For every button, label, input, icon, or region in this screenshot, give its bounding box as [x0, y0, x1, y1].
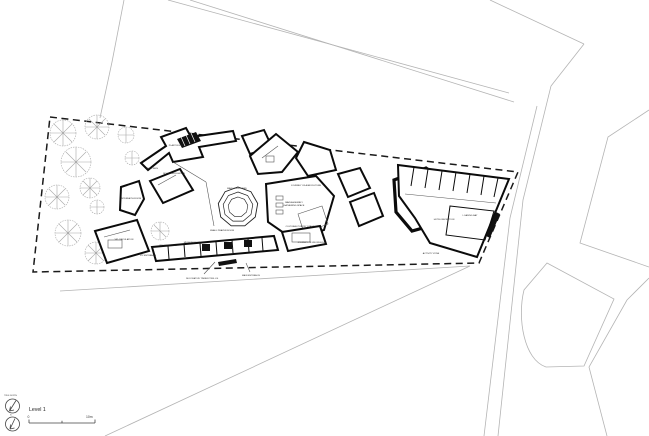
- room-label: BOOK CIRCULATION: [163, 172, 185, 175]
- scale-zero: 0: [28, 415, 30, 419]
- project-north-label: N: [10, 415, 12, 417]
- room-label: NEW LINKS: [146, 168, 159, 170]
- room-label: MAIN ASSEMBLY: [285, 201, 303, 204]
- room-label: VIP COURTYARD: [159, 244, 177, 247]
- note-label: DECORATIVE TIMBER TRELLIS: [186, 277, 219, 280]
- scale-bar: 0 10m: [28, 415, 96, 423]
- room-label: JOURNEY OF KNOWLEDGE: [298, 242, 327, 244]
- prayer-room-rings: [218, 187, 257, 226]
- room-label: SMALL PRAYER ROOM: [210, 229, 234, 232]
- tree-icon: [61, 147, 91, 177]
- tree-icon: [90, 200, 104, 214]
- room-label: VIP ENTRANCE: [140, 254, 157, 257]
- tree-icon: [118, 127, 134, 143]
- tree-icon: [55, 220, 81, 246]
- room-label: PLANT ROOM: [169, 144, 184, 147]
- scale-max: 10m: [86, 415, 93, 419]
- room-label: MAIN COURTYARD: [227, 187, 247, 190]
- true-north-label: TRUE NORTH: [4, 395, 18, 397]
- tree-icon: [85, 115, 109, 139]
- level-title: Level 1: [29, 407, 46, 413]
- entrance-canopy: [218, 259, 237, 266]
- tree-icon: [80, 178, 100, 198]
- true-north-arrow-icon: TRUE NORTH: [4, 395, 20, 413]
- building-walls: [95, 128, 509, 274]
- site-context-lines: [60, 0, 649, 436]
- floor-plan-drawing: PLANT ROOM NEW LINKS BOOK CIRCULATION MA…: [0, 0, 649, 436]
- floor-plan-sheet: PLANT ROOM NEW LINKS BOOK CIRCULATION MA…: [0, 0, 649, 436]
- room-label: JOURNEY OF AGRICULTURE: [291, 184, 322, 187]
- room-label: LOADING BAY: [463, 214, 478, 217]
- room-label: INTERFAITH ROOM: [121, 197, 141, 200]
- tree-icon: [151, 222, 169, 240]
- tree-icon: [50, 120, 76, 146]
- legend: TRUE NORTH N Level 1 0 10m: [4, 395, 95, 431]
- room-label: VIP CIRCULATION: [115, 238, 134, 241]
- room-label: CULTURAL POETRY STAGE: [286, 225, 315, 228]
- room-label: HOTEL RECEPTION: [434, 219, 455, 221]
- tree-icon: [45, 185, 69, 209]
- room-label: MUSEUM SHOP: [184, 242, 201, 244]
- room-label: ACTIVITY ZONE: [423, 252, 440, 255]
- project-north-arrow-icon: N: [6, 415, 20, 432]
- room-label: GATHERING SPACE: [284, 204, 305, 207]
- tree-icon: [125, 151, 139, 165]
- note-label: MAIN ENTRANCE: [242, 274, 261, 277]
